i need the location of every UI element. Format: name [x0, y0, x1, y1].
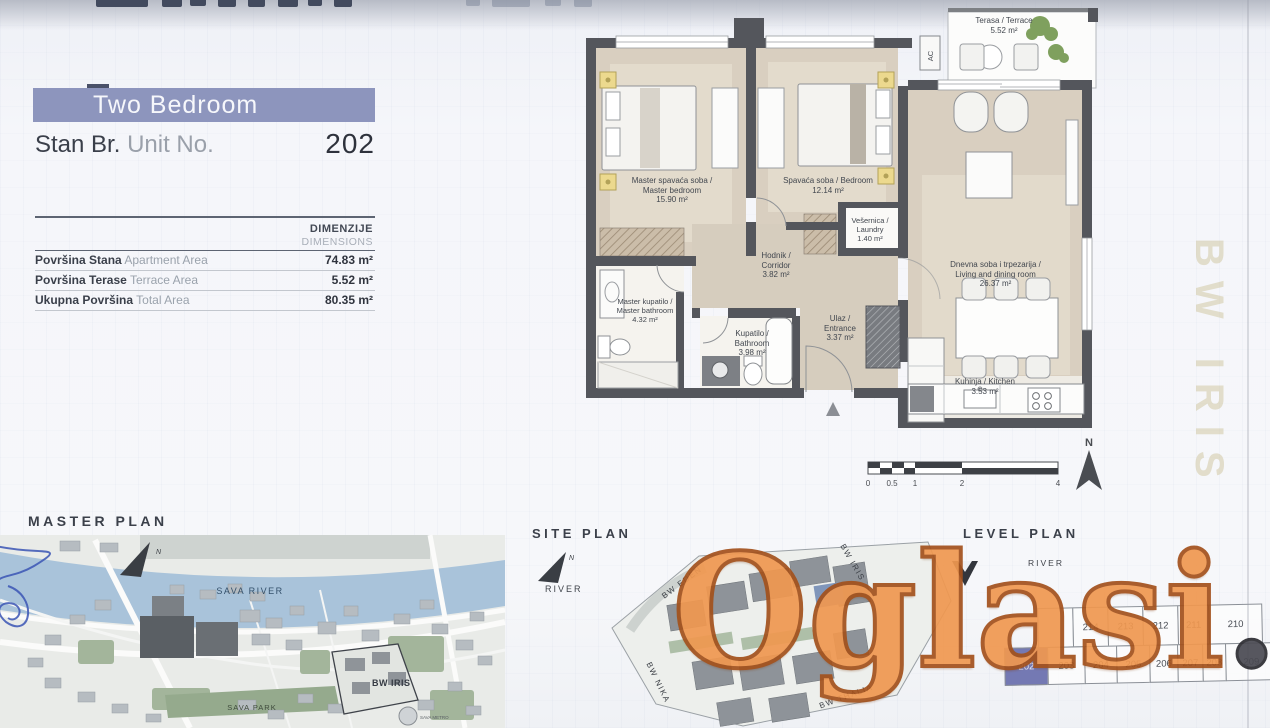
entrance-marker-icon — [826, 402, 840, 416]
unit-cell: 205 — [1116, 645, 1151, 684]
unit-cell: 210 — [1208, 603, 1263, 644]
bw-iris-label: BW IRIS — [372, 678, 411, 688]
svg-text:1: 1 — [913, 479, 918, 488]
unit-cell: 211 — [1177, 605, 1210, 646]
site-plan-river-label: RIVER — [545, 584, 583, 594]
unit-cell: 213 — [1107, 606, 1144, 647]
room-label-bedroom: Spavaća soba / Bedroom12.14 m² — [758, 176, 898, 195]
north-arrow-icon: N — [1076, 437, 1102, 490]
site-plan-north-icon: N — [538, 552, 575, 583]
room-label-entrance: Ulaz /Entrance3.37 m² — [807, 314, 873, 343]
svg-text:4: 4 — [1056, 479, 1061, 488]
scanned-floorplan-page: Two Bedroom Stan Br. Unit No. 202 DIMENZ… — [0, 0, 1270, 728]
level-plan-arrow-icon — [952, 561, 978, 586]
unit-cell-highlighted: 202 — [1004, 647, 1049, 686]
room-label-master-bedroom: Master spavaća soba /Master bedroom15.90… — [598, 176, 746, 205]
ac-label: AC — [926, 50, 935, 61]
svg-text:N: N — [1085, 437, 1093, 449]
unit-cell: 204 — [1084, 646, 1118, 685]
unit-cell: 206 — [1149, 644, 1179, 683]
sava-river-label: SAVA RIVER — [216, 586, 283, 596]
unit-cell: 208 — [1202, 643, 1227, 681]
scale-bar: 0 0.5 1 2 4 — [866, 462, 1061, 488]
room-label-living-dining: Dnevna soba i trpezarija /Living and din… — [918, 260, 1073, 289]
svg-text:2: 2 — [960, 479, 965, 488]
room-label-corridor: Hodnik /Corridor3.82 m² — [741, 251, 811, 280]
floor-plan: AC — [586, 8, 1102, 490]
room-label-kitchen: Kuhinja / Kitchen3.53 m² — [925, 377, 1045, 396]
room-label-laundry: Vešernica /Laundry1.40 m² — [840, 216, 900, 243]
metro-label: SAVA METRO — [420, 715, 449, 720]
site-plan-map: N — [538, 542, 951, 728]
page-edge-line — [1247, 0, 1249, 728]
site-plan-title: SITE PLAN — [532, 526, 631, 541]
room-label-bathroom: Kupatilo /Bathroom3.98 m² — [717, 329, 787, 358]
level-plan-title: LEVEL PLAN — [963, 526, 1079, 541]
svg-text:N: N — [569, 555, 575, 562]
sava-park-label: SAVA PARK — [227, 703, 276, 712]
master-plan-title: MASTER PLAN — [28, 513, 168, 529]
room-label-master-bathroom: Master kupatilo /Master bathroom4.32 m² — [614, 297, 676, 324]
master-plan-map: SAVA METRO SAVA RIVER SAVA PARK BW IRIS … — [0, 535, 505, 728]
level-plan-grid: 214 213 212 211 210 202 203 204 205 206 … — [1004, 603, 1270, 686]
side-watermark: BW IRIS — [1186, 238, 1231, 548]
svg-text:0.5: 0.5 — [886, 479, 898, 488]
terrace-chair — [1014, 44, 1038, 70]
level-plan-bottom-row: 202 203 204 205 206 207 208 209 — [1005, 643, 1270, 686]
svg-text:0: 0 — [866, 479, 871, 488]
level-plan-river-label: RIVER — [1028, 558, 1064, 568]
room-label-terrace: Terasa / Terrace5.52 m² — [948, 16, 1060, 35]
unit-cell: 207 — [1177, 644, 1204, 683]
level-plan-top-row: 214 213 212 211 210 — [1038, 603, 1270, 648]
unit-cell — [1037, 607, 1074, 648]
unit-cell: 214 — [1072, 607, 1109, 648]
terrace-chair — [960, 44, 984, 70]
unit-cell: 212 — [1142, 605, 1179, 646]
unit-cell: 203 — [1047, 646, 1086, 685]
